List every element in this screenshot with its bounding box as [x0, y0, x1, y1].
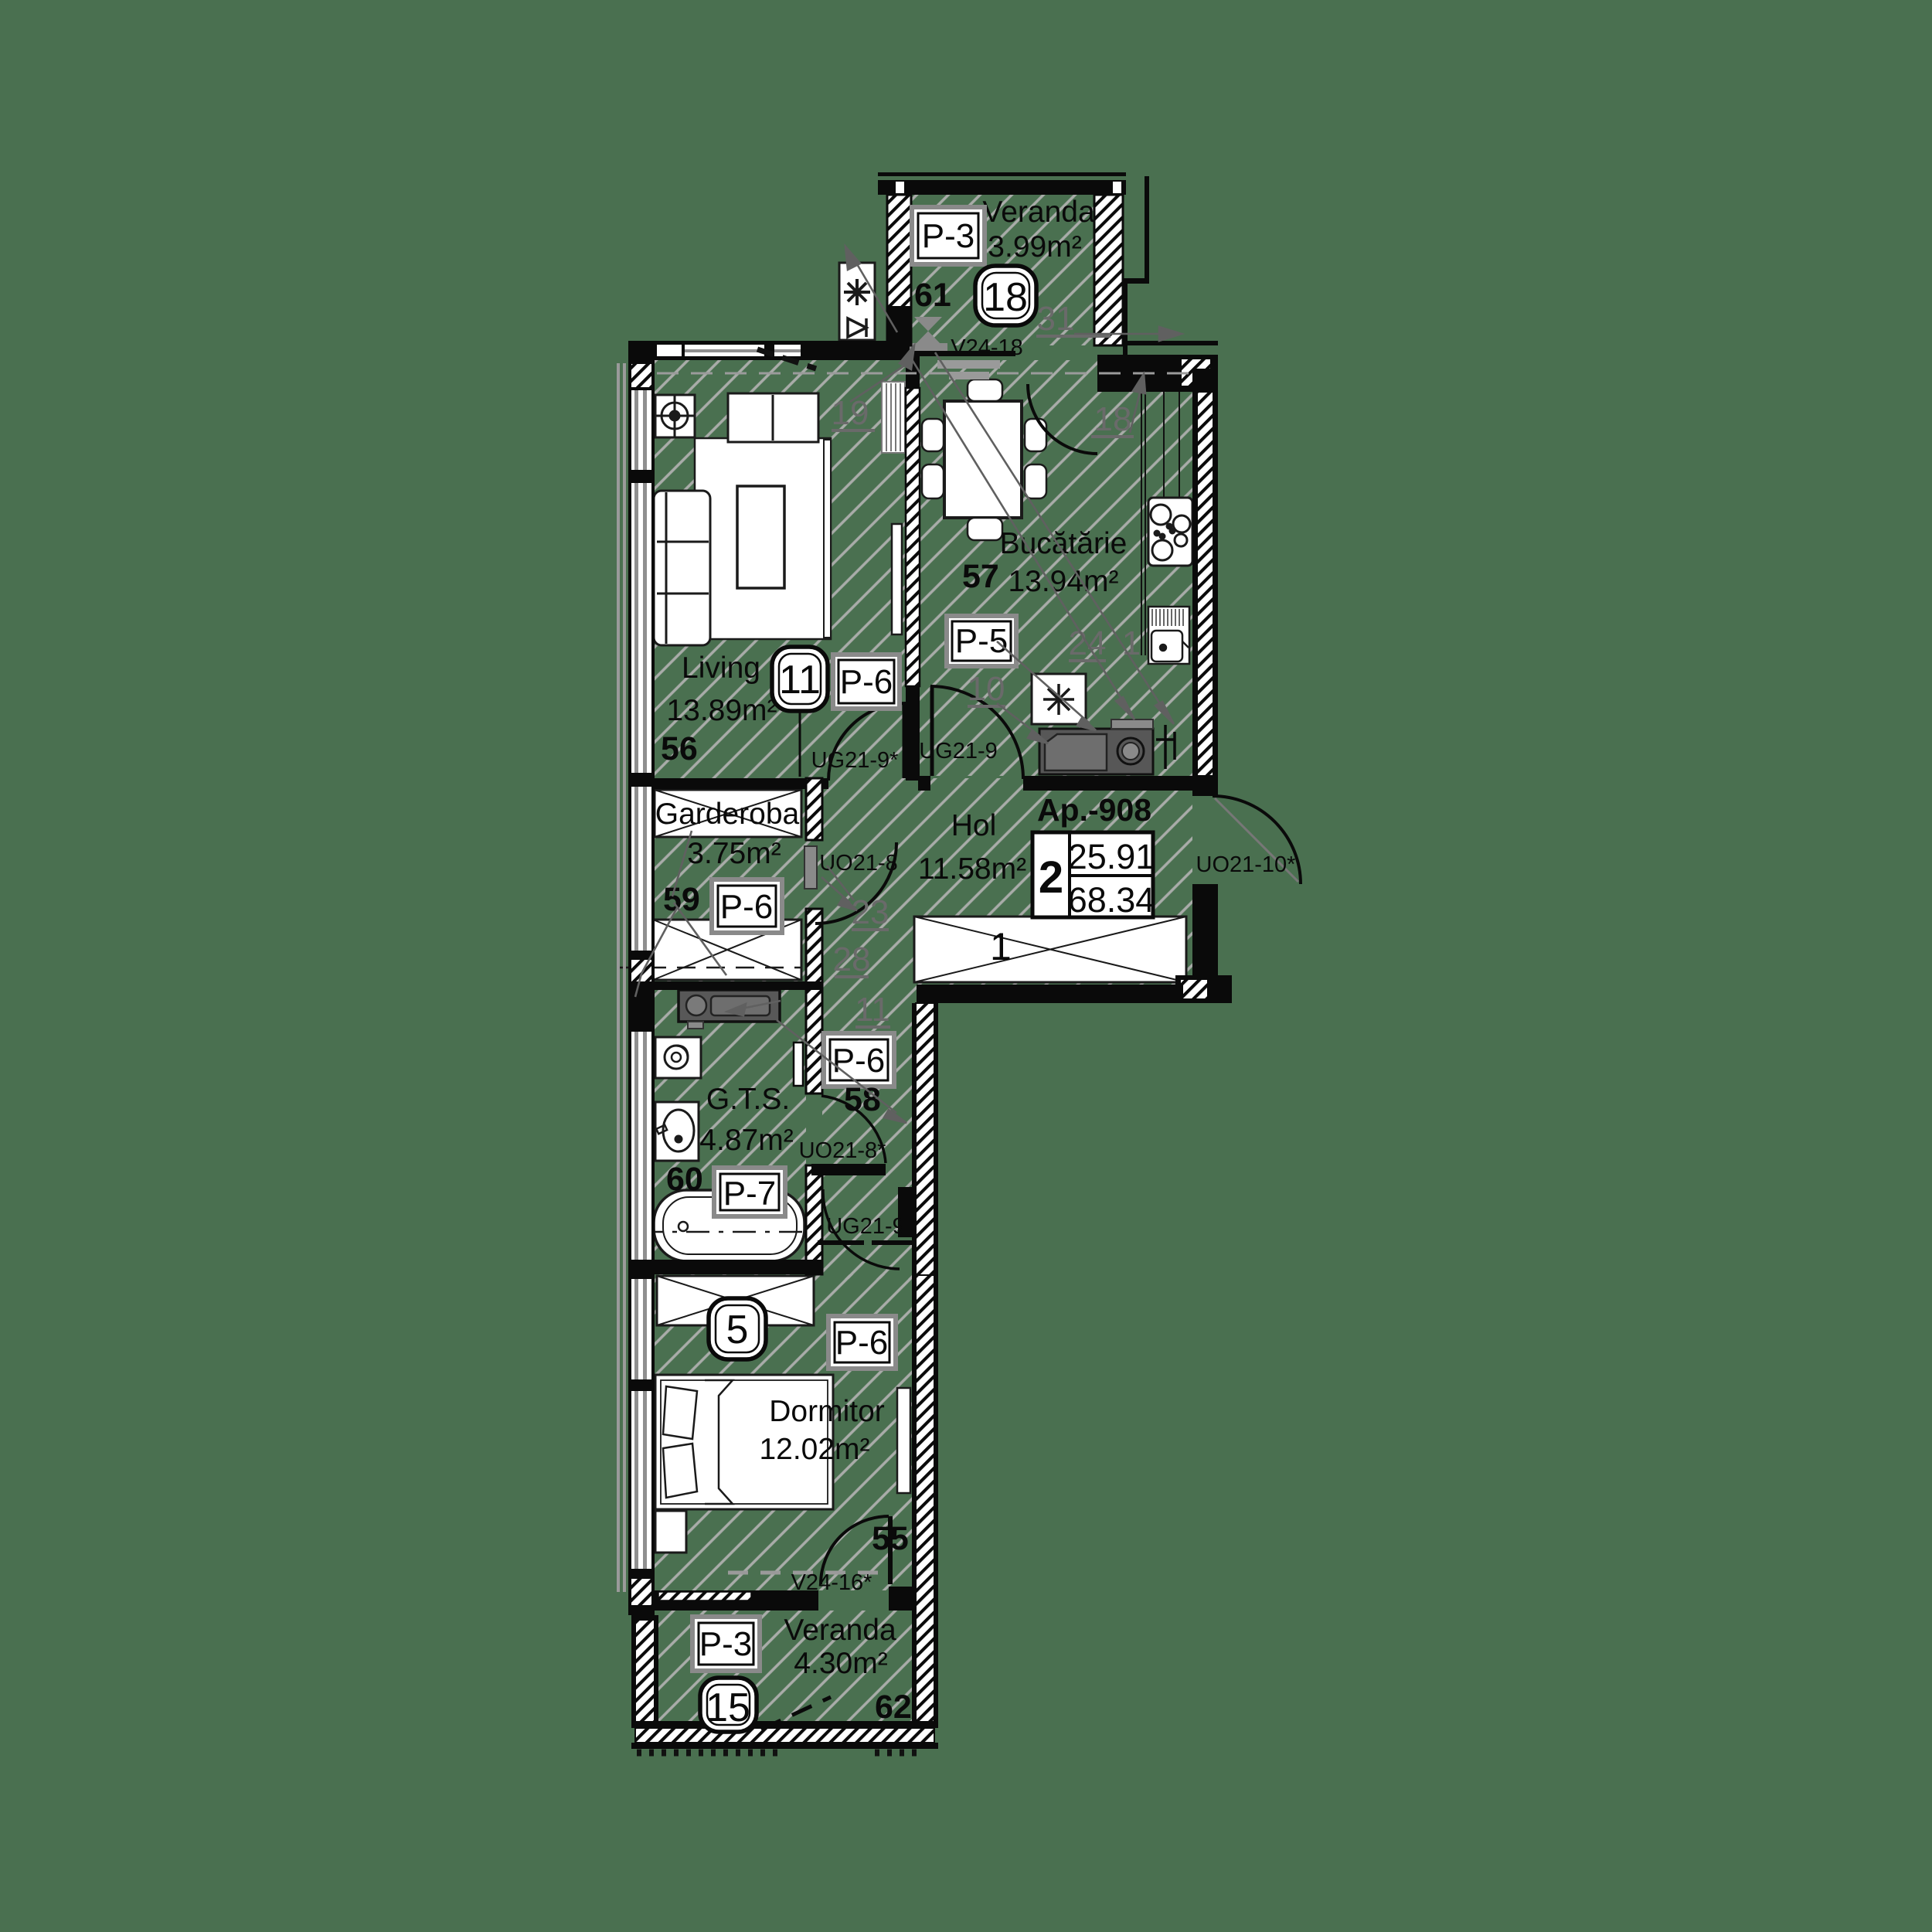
svg-text:18: 18 [1094, 400, 1132, 438]
svg-text:V24-16*: V24-16* [791, 1570, 872, 1595]
svg-text:57: 57 [962, 558, 999, 595]
svg-text:3.75m²: 3.75m² [687, 837, 781, 870]
svg-text:1: 1 [1122, 624, 1141, 662]
svg-text:19: 19 [832, 394, 869, 432]
svg-text:31: 31 [1037, 300, 1075, 338]
svg-text:62: 62 [875, 1689, 912, 1726]
svg-text:56: 56 [661, 730, 698, 767]
svg-text:25.91: 25.91 [1068, 837, 1155, 876]
svg-text:13.89m²: 13.89m² [666, 694, 777, 727]
svg-text:10: 10 [968, 670, 1005, 708]
svg-text:P-6: P-6 [840, 663, 893, 701]
svg-text:P-3: P-3 [699, 1625, 752, 1663]
svg-text:P-7: P-7 [723, 1175, 776, 1213]
svg-text:Dormitor: Dormitor [769, 1395, 885, 1428]
svg-text:UG21-9: UG21-9 [826, 1214, 905, 1239]
svg-text:P-6: P-6 [720, 888, 773, 926]
svg-text:V24-18: V24-18 [951, 335, 1023, 360]
svg-text:3.99m²: 3.99m² [988, 230, 1081, 264]
svg-text:P-6: P-6 [835, 1324, 888, 1362]
svg-text:55: 55 [872, 1520, 909, 1557]
svg-text:G.T.S.: G.T.S. [706, 1083, 790, 1116]
svg-text:11: 11 [779, 658, 821, 702]
svg-text:UO21-10*: UO21-10* [1196, 852, 1296, 877]
svg-text:P-5: P-5 [955, 622, 1008, 660]
svg-text:1: 1 [990, 925, 1012, 968]
svg-text:11.58m²: 11.58m² [918, 852, 1026, 886]
svg-text:61: 61 [914, 277, 951, 314]
svg-text:12.02m²: 12.02m² [759, 1433, 869, 1466]
svg-text:28: 28 [833, 940, 871, 978]
svg-text:68.34: 68.34 [1068, 880, 1155, 920]
svg-text:60: 60 [666, 1161, 703, 1198]
svg-text:15: 15 [706, 1685, 750, 1730]
svg-text:11: 11 [855, 991, 890, 1029]
svg-text:5: 5 [726, 1308, 749, 1352]
svg-text:4.87m²: 4.87m² [699, 1124, 793, 1157]
svg-text:2: 2 [1039, 852, 1063, 903]
svg-text:Ap.-908: Ap.-908 [1037, 792, 1151, 828]
svg-text:P-3: P-3 [922, 217, 975, 255]
svg-text:13.94m²: 13.94m² [1008, 565, 1118, 598]
svg-text:UG21-9: UG21-9 [919, 739, 998, 764]
svg-text:Veranda: Veranda [982, 196, 1095, 229]
svg-text:P-6: P-6 [832, 1042, 885, 1080]
svg-text:UO21-8*: UO21-8* [799, 1138, 886, 1163]
svg-text:Veranda: Veranda [784, 1614, 896, 1647]
svg-text:18: 18 [983, 275, 1028, 320]
svg-text:Living: Living [682, 651, 760, 685]
svg-text:UG21-9*: UG21-9* [811, 748, 899, 773]
svg-text:Hol: Hol [951, 809, 997, 842]
svg-text:4.30m²: 4.30m² [794, 1647, 887, 1680]
svg-text:Garderoba: Garderoba [655, 798, 800, 831]
svg-text:23: 23 [852, 893, 889, 931]
